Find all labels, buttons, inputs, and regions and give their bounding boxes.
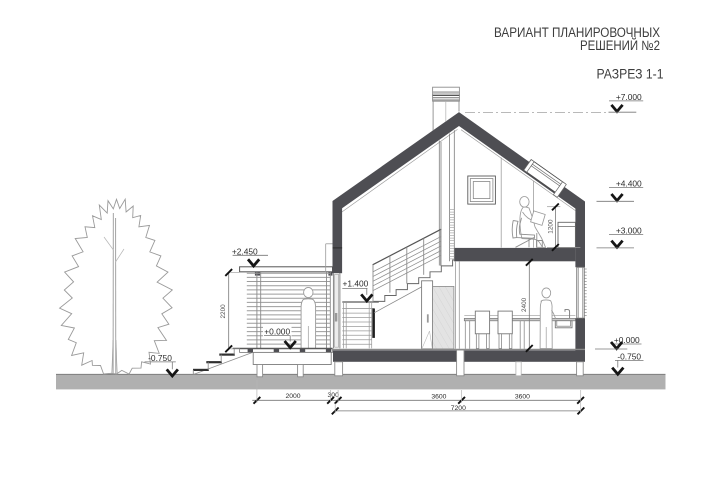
svg-text:3600: 3600: [431, 393, 446, 400]
svg-text:2400: 2400: [521, 297, 528, 312]
svg-text:-0.750: -0.750: [148, 353, 172, 363]
svg-text:2000: 2000: [285, 393, 300, 400]
svg-text:7200: 7200: [451, 405, 466, 412]
svg-text:+2.450: +2.450: [232, 246, 258, 256]
svg-text:3600: 3600: [515, 393, 530, 400]
svg-text:+0.000: +0.000: [264, 326, 290, 336]
svg-text:РЕШЕНИЙ №2: РЕШЕНИЙ №2: [580, 38, 660, 53]
svg-text:300: 300: [328, 392, 340, 399]
svg-text:РАЗРЕЗ 1-1: РАЗРЕЗ 1-1: [597, 66, 664, 81]
svg-text:2200: 2200: [220, 304, 227, 319]
svg-text:+1.400: +1.400: [342, 278, 368, 288]
svg-text:1200: 1200: [548, 219, 555, 234]
